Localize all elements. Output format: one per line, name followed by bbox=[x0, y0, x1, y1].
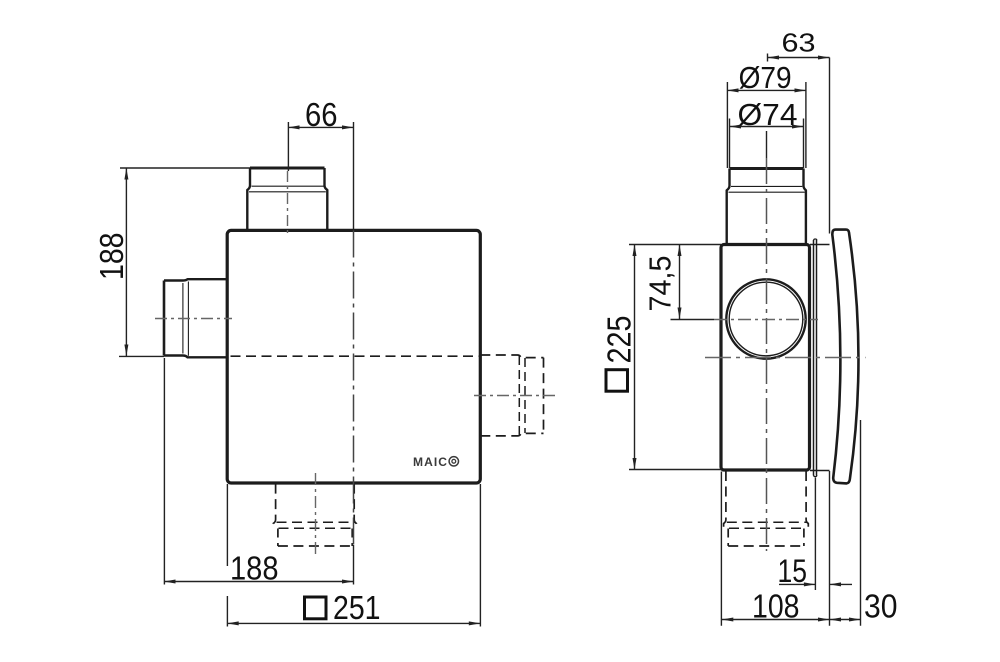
svg-text:188: 188 bbox=[230, 549, 279, 586]
svg-text:MAIC: MAIC bbox=[413, 457, 448, 469]
svg-text:225: 225 bbox=[601, 316, 638, 364]
svg-text:63: 63 bbox=[782, 27, 816, 57]
svg-text:66: 66 bbox=[305, 96, 338, 133]
svg-text:Ø74: Ø74 bbox=[738, 97, 798, 132]
svg-text:108: 108 bbox=[752, 587, 800, 624]
svg-text:74,5: 74,5 bbox=[643, 256, 678, 312]
svg-text:251: 251 bbox=[333, 589, 381, 626]
svg-text:30: 30 bbox=[864, 587, 898, 624]
svg-text:15: 15 bbox=[778, 553, 808, 589]
svg-text:188: 188 bbox=[93, 233, 130, 281]
svg-text:Ø79: Ø79 bbox=[739, 60, 792, 95]
